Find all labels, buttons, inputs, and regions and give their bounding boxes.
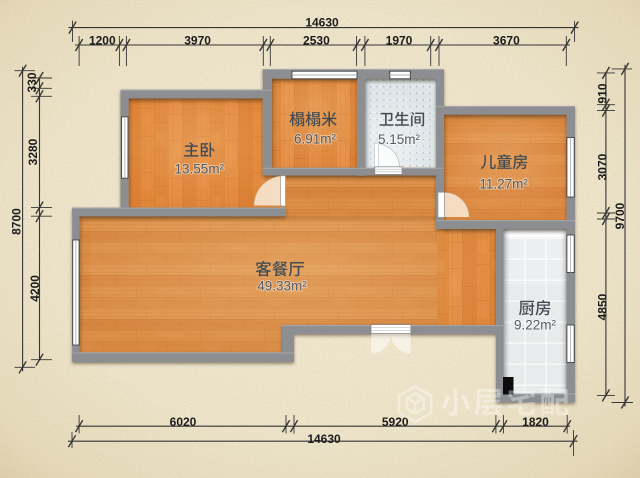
svg-text:1820: 1820 xyxy=(522,415,549,429)
svg-text:2530: 2530 xyxy=(303,33,330,47)
svg-text:3070: 3070 xyxy=(595,153,609,180)
svg-text:5.15m²: 5.15m² xyxy=(378,132,421,147)
svg-text:330: 330 xyxy=(25,72,39,92)
svg-text:49.33m²: 49.33m² xyxy=(257,279,307,294)
svg-text:6.91m²: 6.91m² xyxy=(294,132,337,147)
svg-text:1970: 1970 xyxy=(386,33,413,47)
svg-text:1200: 1200 xyxy=(89,33,116,47)
svg-text:14630: 14630 xyxy=(305,15,339,29)
svg-text:3670: 3670 xyxy=(493,33,520,47)
svg-text:4850: 4850 xyxy=(595,293,609,320)
svg-text:9.22m²: 9.22m² xyxy=(514,317,557,332)
svg-text:6020: 6020 xyxy=(170,415,197,429)
svg-text:14630: 14630 xyxy=(307,432,341,446)
svg-text:3970: 3970 xyxy=(184,33,211,47)
svg-text:13.55m²: 13.55m² xyxy=(175,162,225,177)
svg-text:11.27m²: 11.27m² xyxy=(479,177,528,192)
svg-text:3280: 3280 xyxy=(26,138,40,165)
svg-text:910: 910 xyxy=(595,83,609,103)
svg-text:9700: 9700 xyxy=(613,202,627,229)
svg-text:8700: 8700 xyxy=(9,208,23,235)
svg-text:4200: 4200 xyxy=(28,275,42,302)
